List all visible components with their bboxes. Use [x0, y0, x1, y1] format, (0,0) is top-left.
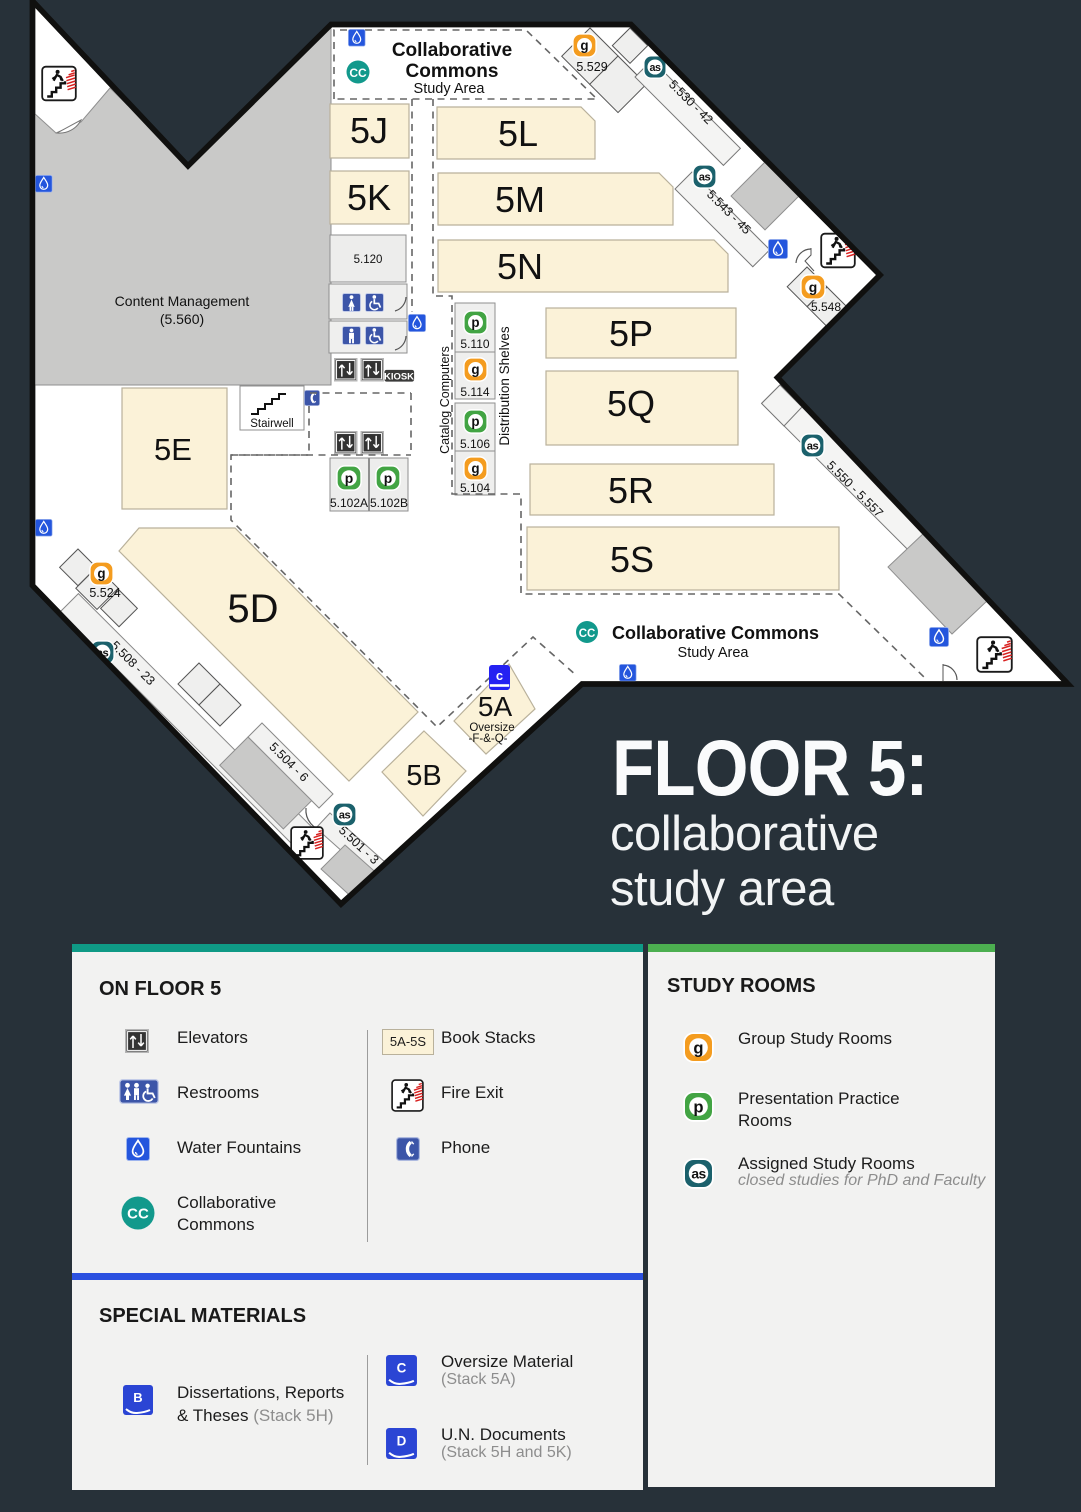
- svg-text:5K: 5K: [347, 177, 391, 218]
- svg-text:5E: 5E: [154, 432, 192, 467]
- svg-text:5J: 5J: [350, 110, 388, 151]
- svg-text:D: D: [397, 1434, 407, 1449]
- svg-text:Study Area: Study Area: [414, 81, 486, 97]
- svg-text:5R: 5R: [608, 470, 654, 511]
- svg-text:KIOSK: KIOSK: [384, 372, 414, 383]
- svg-text:Distribution Shelves: Distribution Shelves: [497, 326, 512, 446]
- svg-text:5.104: 5.104: [460, 481, 490, 495]
- svg-text:5.102A: 5.102A: [330, 496, 368, 510]
- svg-text:5.524: 5.524: [89, 586, 120, 600]
- svg-text:B: B: [133, 1390, 142, 1405]
- svg-text:5A: 5A: [478, 691, 513, 722]
- svg-text:Collaborative Commons: Collaborative Commons: [612, 623, 819, 643]
- svg-text:Stairwell: Stairwell: [250, 418, 293, 430]
- svg-text:Study Area: Study Area: [678, 645, 750, 661]
- svg-text:5.106: 5.106: [460, 437, 490, 451]
- svg-text:-F-&-Q-: -F-&-Q-: [469, 733, 508, 745]
- svg-text:5.548: 5.548: [811, 300, 841, 314]
- svg-text:5D: 5D: [227, 587, 278, 631]
- svg-text:Catalog Computers: Catalog Computers: [438, 346, 452, 454]
- svg-text:5Q: 5Q: [607, 383, 655, 424]
- svg-text:CC: CC: [349, 66, 367, 80]
- svg-text:5.114: 5.114: [460, 385, 489, 399]
- svg-text:5L: 5L: [498, 113, 538, 154]
- svg-text:Commons: Commons: [406, 61, 499, 82]
- svg-text:5.110: 5.110: [460, 337, 489, 351]
- svg-text:Collaborative: Collaborative: [392, 40, 512, 61]
- svg-text:5.102B: 5.102B: [370, 496, 408, 510]
- svg-text:C: C: [397, 1361, 407, 1376]
- svg-text:Content Management: Content Management: [115, 293, 250, 309]
- svg-text:5N: 5N: [497, 246, 543, 287]
- svg-text:5.529: 5.529: [576, 60, 607, 74]
- svg-text:5P: 5P: [609, 313, 653, 354]
- svg-text:5.120: 5.120: [354, 254, 383, 266]
- svg-text:5S: 5S: [610, 539, 654, 580]
- svg-text:CC: CC: [127, 1206, 149, 1223]
- svg-text:5M: 5M: [495, 179, 545, 220]
- svg-text:CC: CC: [579, 628, 596, 640]
- svg-text:5B: 5B: [406, 760, 441, 792]
- svg-text:(5.560): (5.560): [160, 311, 204, 327]
